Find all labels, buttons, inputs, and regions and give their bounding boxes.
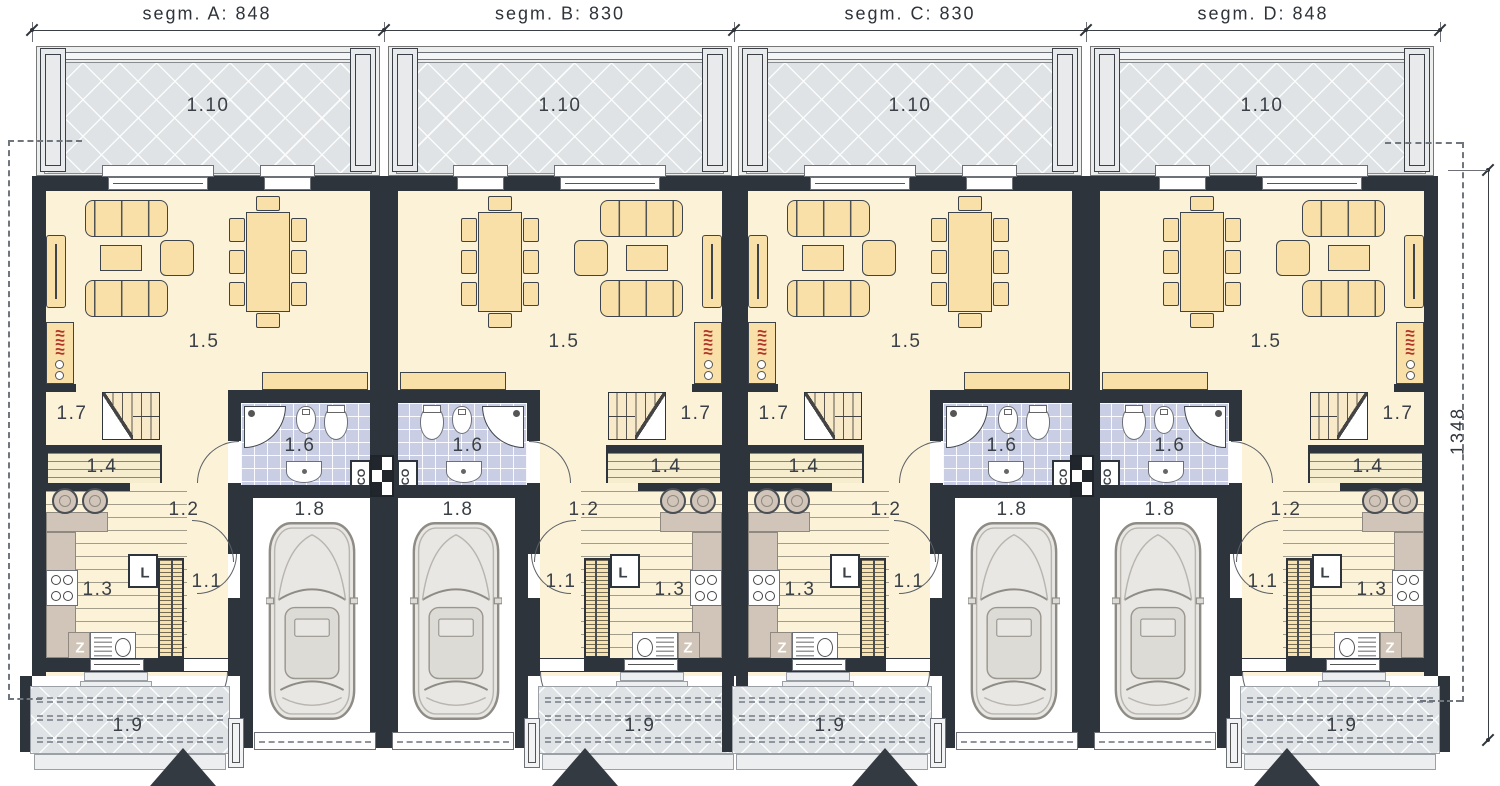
terrace-door bbox=[966, 177, 1013, 190]
dim-extension bbox=[384, 22, 385, 42]
sofa-bottom bbox=[600, 280, 683, 317]
wall-living-bottom bbox=[228, 390, 384, 403]
terrace-label: 1.10 bbox=[1241, 95, 1284, 117]
sideboard bbox=[964, 372, 1070, 390]
sofa-top bbox=[787, 200, 870, 237]
porch-pillar bbox=[524, 718, 540, 768]
dim-dot bbox=[30, 28, 34, 32]
boiler-label: CO bbox=[356, 469, 368, 486]
wall-stub-fireplace bbox=[1394, 384, 1424, 392]
dim-label-top: segm. B: 830 bbox=[495, 4, 625, 25]
terrace-door-sill bbox=[962, 165, 1017, 177]
dining-chair bbox=[1190, 313, 1214, 328]
fridge-label: L bbox=[1320, 565, 1329, 582]
wall-left bbox=[32, 176, 46, 676]
fridge: L bbox=[1312, 554, 1342, 588]
dim-extension bbox=[1448, 170, 1488, 171]
toilet bbox=[420, 406, 444, 440]
sofa-bottom bbox=[85, 280, 168, 317]
fridge: L bbox=[128, 554, 158, 588]
porch-dash-line bbox=[1247, 737, 1433, 743]
dining-chair bbox=[1163, 282, 1179, 306]
sofa-top bbox=[1302, 200, 1385, 237]
dim-extension bbox=[1086, 22, 1087, 42]
wall-garage-left bbox=[240, 498, 253, 748]
dim-dot bbox=[1084, 28, 1088, 32]
terrace-door-sill bbox=[453, 165, 508, 177]
sideboard bbox=[262, 372, 368, 390]
window-kitchen bbox=[1326, 659, 1380, 671]
terrace-pillar-right bbox=[1094, 48, 1120, 172]
dining-chair bbox=[993, 218, 1009, 242]
floor-plan-canvas: 1.101.5≈≈≈1.71.4LZ1.31.21.1CO1.61.81.91.… bbox=[0, 0, 1500, 786]
kitchen-label: 1.3 bbox=[83, 579, 114, 601]
fireplace: ≈≈≈ bbox=[1396, 322, 1424, 384]
front-door-opening bbox=[1242, 659, 1286, 671]
terrace-rail bbox=[44, 52, 372, 60]
dim-dot bbox=[1486, 738, 1490, 742]
entrance-marker bbox=[852, 748, 918, 786]
dining-chair bbox=[931, 218, 947, 242]
garage-door bbox=[254, 732, 376, 750]
stove bbox=[1392, 570, 1424, 606]
entrance-marker bbox=[552, 748, 618, 786]
dining-chair bbox=[229, 218, 245, 242]
washbasin bbox=[988, 461, 1024, 483]
wardrobe bbox=[584, 558, 610, 658]
segment-b: 1.101.5≈≈≈1.71.4LZ1.31.21.1CO1.61.81.9 bbox=[384, 42, 736, 786]
porch-label: 1.9 bbox=[113, 715, 144, 737]
dining-chair bbox=[958, 196, 982, 211]
dining-chair bbox=[256, 196, 280, 211]
porch-dash-line bbox=[545, 697, 731, 703]
living-label: 1.5 bbox=[891, 331, 922, 353]
bidet bbox=[1154, 406, 1174, 434]
window-kitchen bbox=[792, 659, 846, 671]
dim-label-top: segm. D: 848 bbox=[1197, 4, 1328, 25]
dining-chair bbox=[291, 218, 307, 242]
window-sill bbox=[804, 165, 916, 177]
dining-chair bbox=[523, 250, 539, 274]
wall-living-bottom bbox=[930, 390, 1086, 403]
armchair bbox=[862, 240, 896, 276]
dining-chair bbox=[488, 313, 512, 328]
dining-chair bbox=[1225, 282, 1241, 306]
segment-d: 1.101.5≈≈≈1.71.4LZ1.31.21.1CO1.61.81.9 bbox=[1086, 42, 1438, 786]
property-dash-left-bottom bbox=[8, 698, 42, 700]
fridge-label: L bbox=[618, 565, 627, 582]
terrace-pillar-left bbox=[702, 48, 728, 172]
armchair bbox=[574, 240, 608, 276]
coffee-table bbox=[802, 245, 844, 271]
dining-chair bbox=[291, 250, 307, 274]
wall-garage-left bbox=[942, 498, 955, 748]
dining-table bbox=[478, 212, 522, 312]
stairs-label: 1.7 bbox=[681, 403, 712, 425]
segment-c: 1.101.5≈≈≈1.71.4LZ1.31.21.1CO1.61.81.9 bbox=[734, 42, 1086, 786]
stove bbox=[690, 570, 722, 606]
wall-storage-top bbox=[1308, 445, 1424, 453]
dining-chair bbox=[1225, 250, 1241, 274]
terrace-door-sill bbox=[260, 165, 315, 177]
chimney-flue bbox=[372, 470, 382, 483]
dining-chair bbox=[1190, 196, 1214, 211]
chimney-flue bbox=[372, 457, 382, 470]
front-steps bbox=[620, 672, 684, 681]
coffee-table bbox=[626, 245, 668, 271]
garage-door bbox=[1094, 732, 1216, 750]
chimney-flue bbox=[372, 482, 382, 495]
cabinet-tall bbox=[748, 235, 768, 308]
staircase bbox=[804, 392, 862, 440]
armchair bbox=[1276, 240, 1310, 276]
kitchen-label: 1.3 bbox=[1357, 579, 1388, 601]
front-steps bbox=[1322, 672, 1386, 681]
porch-dash-line bbox=[739, 737, 925, 743]
dining-chair bbox=[1163, 218, 1179, 242]
wardrobe bbox=[1286, 558, 1312, 658]
chimney-flue bbox=[382, 457, 392, 470]
storage-label: 1.4 bbox=[87, 456, 118, 478]
terrace-label: 1.10 bbox=[187, 95, 230, 117]
dim-dot bbox=[732, 28, 736, 32]
front-steps bbox=[786, 672, 850, 681]
terrace-pillar-right bbox=[1052, 48, 1078, 172]
dining-chair bbox=[523, 218, 539, 242]
wall-garage-top bbox=[930, 485, 1086, 498]
storage-label: 1.4 bbox=[1353, 456, 1384, 478]
stove bbox=[748, 570, 780, 606]
cabinet-tall bbox=[46, 235, 66, 308]
dining-chair bbox=[229, 250, 245, 274]
wall-stub-fireplace bbox=[46, 384, 76, 392]
dining-chair bbox=[461, 282, 477, 306]
staircase bbox=[1310, 392, 1368, 440]
dim-dot bbox=[1438, 28, 1442, 32]
terrace-pillar-left bbox=[742, 48, 768, 172]
window-kitchen bbox=[90, 659, 144, 671]
kitchen-label: 1.3 bbox=[785, 579, 816, 601]
window-living bbox=[1262, 177, 1362, 190]
terrace-rail bbox=[1098, 52, 1426, 60]
terrace-pillar-right bbox=[350, 48, 376, 172]
dining-chair bbox=[291, 282, 307, 306]
wall-garage-left bbox=[515, 498, 528, 748]
kitchen-label: 1.3 bbox=[655, 579, 686, 601]
dining-chair bbox=[488, 196, 512, 211]
terrace-door bbox=[264, 177, 311, 190]
wall-garage-top bbox=[228, 485, 384, 498]
coffee-table bbox=[100, 245, 142, 271]
property-dash-right bbox=[1462, 142, 1464, 702]
sofa-bottom bbox=[1302, 280, 1385, 317]
chimney-block bbox=[370, 455, 394, 497]
kitchen-pot bbox=[784, 488, 810, 514]
chimney-flue bbox=[1072, 470, 1082, 483]
sink-cabinet-label: Z bbox=[777, 640, 786, 657]
washbasin bbox=[446, 461, 482, 483]
entrance-marker bbox=[150, 748, 216, 786]
stairs-label: 1.7 bbox=[57, 403, 88, 425]
dim-extension bbox=[1440, 22, 1441, 42]
counter-top bbox=[660, 512, 722, 532]
chimney-flue bbox=[382, 470, 392, 483]
boiler-label: CO bbox=[400, 469, 412, 486]
car bbox=[266, 518, 358, 724]
dim-label-right: 1348 bbox=[1448, 345, 1469, 455]
entrance-marker bbox=[1254, 748, 1320, 786]
stairs-label: 1.7 bbox=[759, 403, 790, 425]
counter-top bbox=[46, 512, 108, 532]
terrace-pillar-right bbox=[392, 48, 418, 172]
bathroom-label: 1.6 bbox=[1155, 435, 1186, 457]
wall-left bbox=[734, 176, 748, 676]
wall-storage-top bbox=[606, 445, 722, 453]
garage-door bbox=[392, 732, 514, 750]
dining-chair bbox=[461, 250, 477, 274]
property-dash-left-top bbox=[8, 140, 82, 142]
segment-a: 1.101.5≈≈≈1.71.4LZ1.31.21.1CO1.61.81.9 bbox=[32, 42, 384, 786]
dining-table bbox=[246, 212, 290, 312]
wall-living-bottom bbox=[384, 390, 540, 403]
counter-top bbox=[748, 512, 810, 532]
hall-label: 1.2 bbox=[569, 499, 600, 521]
sink-cabinet-label: Z bbox=[1385, 640, 1394, 657]
wall-stub-fireplace bbox=[748, 384, 778, 392]
wall-storage-top bbox=[46, 445, 162, 453]
kitchen-pot bbox=[1392, 488, 1418, 514]
chimney-flue bbox=[1082, 457, 1092, 470]
dim-extension bbox=[32, 22, 33, 42]
hall-label: 1.2 bbox=[1271, 499, 1302, 521]
dim-line-right bbox=[1488, 170, 1489, 740]
wardrobe bbox=[158, 558, 184, 658]
storage-label: 1.4 bbox=[651, 456, 682, 478]
fireplace: ≈≈≈ bbox=[46, 322, 74, 384]
chimney-flue bbox=[1072, 482, 1082, 495]
kitchen-pot bbox=[690, 488, 716, 514]
storage-label: 1.4 bbox=[789, 456, 820, 478]
porch-pillar bbox=[228, 718, 244, 768]
terrace-rail bbox=[396, 52, 724, 60]
car bbox=[410, 518, 502, 724]
toilet bbox=[324, 406, 348, 440]
property-dash-right-top bbox=[1385, 142, 1462, 144]
bidet bbox=[998, 406, 1018, 434]
window-living bbox=[560, 177, 660, 190]
window-living bbox=[108, 177, 208, 190]
window-sill bbox=[102, 165, 214, 177]
dining-chair bbox=[256, 313, 280, 328]
chimney-flue bbox=[382, 482, 392, 495]
sofa-bottom bbox=[787, 280, 870, 317]
toilet bbox=[1122, 406, 1146, 440]
window-sill bbox=[1256, 165, 1368, 177]
sideboard bbox=[1102, 372, 1208, 390]
chimney-block bbox=[1070, 455, 1094, 497]
kitchen-pot bbox=[52, 488, 78, 514]
front-steps bbox=[84, 672, 148, 681]
terrace-door-sill bbox=[1155, 165, 1210, 177]
dining-chair bbox=[958, 313, 982, 328]
living-label: 1.5 bbox=[549, 331, 580, 353]
coffee-table bbox=[1328, 245, 1370, 271]
dim-label-top: segm. A: 848 bbox=[142, 4, 271, 25]
terrace-pillar-left bbox=[1404, 48, 1430, 172]
porch-pillar bbox=[1226, 718, 1242, 768]
kitchen-pot bbox=[1362, 488, 1388, 514]
dining-chair bbox=[1163, 250, 1179, 274]
terrace-label: 1.10 bbox=[539, 95, 582, 117]
wall-storage-top bbox=[748, 445, 864, 453]
wall-top bbox=[32, 176, 384, 191]
fireplace: ≈≈≈ bbox=[694, 322, 722, 384]
wall-living-bottom bbox=[1086, 390, 1242, 403]
dim-extension bbox=[734, 22, 735, 42]
dining-chair bbox=[229, 282, 245, 306]
front-door-opening bbox=[184, 659, 228, 671]
wardrobe bbox=[860, 558, 886, 658]
bathroom-label: 1.6 bbox=[453, 435, 484, 457]
dining-chair bbox=[1225, 218, 1241, 242]
bathroom-label: 1.6 bbox=[987, 435, 1018, 457]
fridge-label: L bbox=[842, 565, 851, 582]
kitchen-pot bbox=[754, 488, 780, 514]
dining-table bbox=[948, 212, 992, 312]
staircase bbox=[608, 392, 666, 440]
dining-chair bbox=[931, 250, 947, 274]
hall-label: 1.2 bbox=[871, 499, 902, 521]
property-dash-left bbox=[8, 140, 10, 700]
dining-chair bbox=[931, 282, 947, 306]
dim-label-top: segm. C: 830 bbox=[844, 4, 975, 25]
front-door-opening bbox=[886, 659, 930, 671]
terrace-floor bbox=[44, 62, 372, 174]
staircase bbox=[102, 392, 160, 440]
wall-garage-left bbox=[1217, 498, 1230, 748]
dining-chair bbox=[461, 218, 477, 242]
window-living bbox=[810, 177, 910, 190]
terrace-floor bbox=[396, 62, 724, 174]
porch-dash-line bbox=[1247, 697, 1433, 703]
porch-dash-line bbox=[739, 697, 925, 703]
porch-label: 1.9 bbox=[1327, 715, 1358, 737]
front-door-opening bbox=[540, 659, 584, 671]
living-label: 1.5 bbox=[1251, 331, 1282, 353]
window-kitchen bbox=[624, 659, 678, 671]
dining-chair bbox=[993, 250, 1009, 274]
garage-door bbox=[956, 732, 1078, 750]
sofa-top bbox=[600, 200, 683, 237]
counter-top bbox=[1362, 512, 1424, 532]
boiler-label: CO bbox=[1058, 469, 1070, 486]
chimney-flue bbox=[1082, 470, 1092, 483]
toilet bbox=[1026, 406, 1050, 440]
bidet bbox=[452, 406, 472, 434]
sofa-top bbox=[85, 200, 168, 237]
wall-garage-top bbox=[1086, 485, 1242, 498]
porch-label: 1.9 bbox=[625, 715, 656, 737]
kitchen-pot bbox=[82, 488, 108, 514]
wall-garage-top bbox=[384, 485, 540, 498]
porch-dash-line bbox=[37, 737, 223, 743]
porch-dash-line bbox=[545, 737, 731, 743]
terrace-label: 1.10 bbox=[889, 95, 932, 117]
chimney-flue bbox=[1072, 457, 1082, 470]
bathroom-label: 1.6 bbox=[285, 435, 316, 457]
bidet bbox=[296, 406, 316, 434]
car bbox=[968, 518, 1060, 724]
porch-pillar bbox=[930, 718, 946, 768]
stairs-label: 1.7 bbox=[1383, 403, 1414, 425]
cabinet-tall bbox=[702, 235, 722, 308]
porch-dash-line bbox=[37, 697, 223, 703]
sideboard bbox=[400, 372, 506, 390]
terrace-floor bbox=[746, 62, 1074, 174]
boiler-label: CO bbox=[1102, 469, 1114, 486]
terrace-rail bbox=[746, 52, 1074, 60]
terrace-door bbox=[1159, 177, 1206, 190]
terrace-floor bbox=[1098, 62, 1426, 174]
washbasin bbox=[286, 461, 322, 483]
window-sill bbox=[554, 165, 666, 177]
wall-left bbox=[1424, 176, 1438, 676]
armchair bbox=[160, 240, 194, 276]
terrace-door bbox=[457, 177, 504, 190]
car bbox=[1112, 518, 1204, 724]
fridge-label: L bbox=[140, 565, 149, 582]
living-label: 1.5 bbox=[189, 331, 220, 353]
chimney-flue bbox=[1082, 482, 1092, 495]
fridge: L bbox=[830, 554, 860, 588]
terrace-pillar-left bbox=[40, 48, 66, 172]
dining-chair bbox=[523, 282, 539, 306]
wall-top bbox=[734, 176, 1086, 191]
dining-table bbox=[1180, 212, 1224, 312]
fridge: L bbox=[610, 554, 640, 588]
property-dash-right-bottom bbox=[1420, 700, 1462, 702]
sink-cabinet-label: Z bbox=[75, 640, 84, 657]
dim-dot bbox=[382, 28, 386, 32]
stove bbox=[46, 570, 78, 606]
washbasin bbox=[1148, 461, 1184, 483]
porch-label: 1.9 bbox=[815, 715, 846, 737]
fireplace: ≈≈≈ bbox=[748, 322, 776, 384]
dim-line-top bbox=[30, 30, 1442, 31]
cabinet-tall bbox=[1404, 235, 1424, 308]
dining-chair bbox=[993, 282, 1009, 306]
wall-stub-fireplace bbox=[692, 384, 722, 392]
hall-label: 1.2 bbox=[169, 499, 200, 521]
sink-cabinet-label: Z bbox=[683, 640, 692, 657]
kitchen-pot bbox=[660, 488, 686, 514]
